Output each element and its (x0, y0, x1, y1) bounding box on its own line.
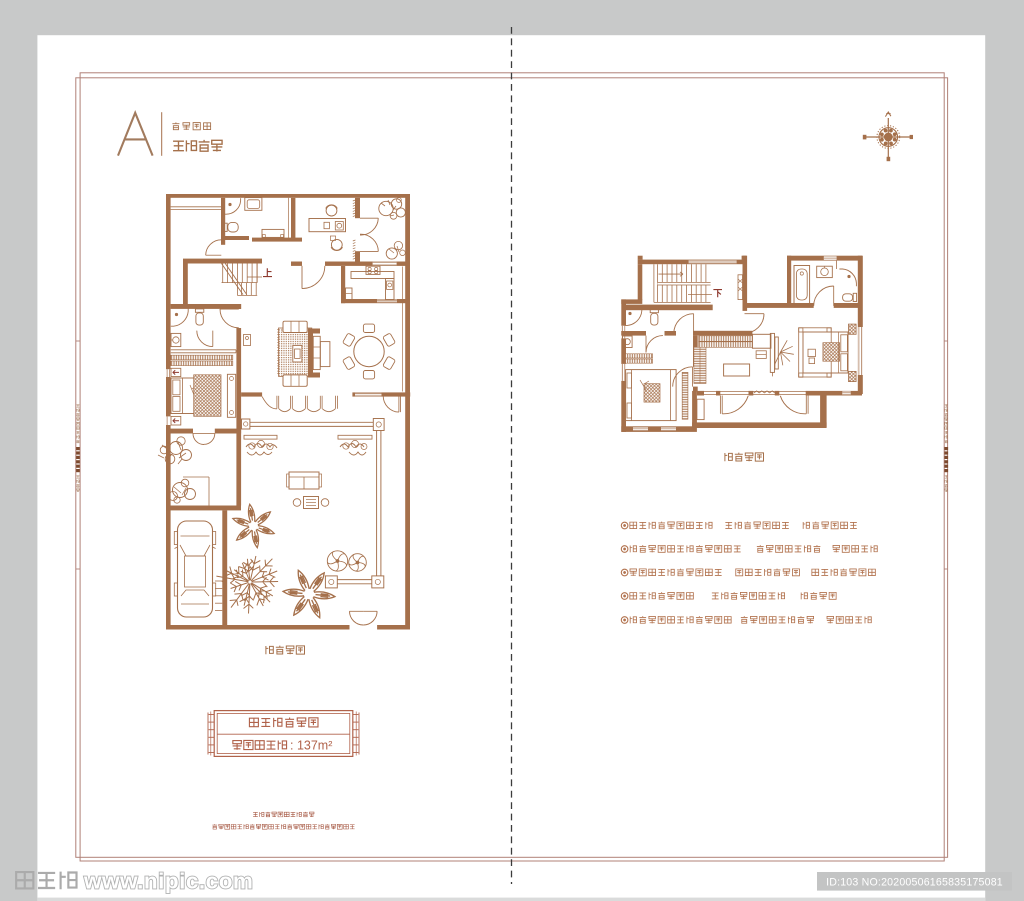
svg-text:ID:103 NO:20200506165835175081: ID:103 NO:20200506165835175081 (826, 877, 1003, 889)
svg-text:www.nipic.com: www.nipic.com (83, 869, 253, 894)
svg-text:: 137m²: : 137m² (290, 739, 332, 753)
